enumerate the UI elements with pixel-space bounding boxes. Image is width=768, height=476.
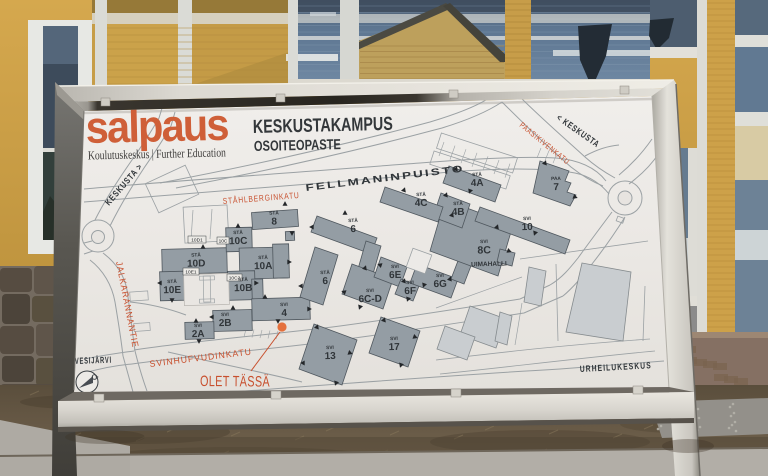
svg-text:2A: 2A [192,329,205,340]
svg-text:10C: 10C [219,238,228,244]
svg-text:P: P [96,375,99,380]
svg-text:4C: 4C [415,198,428,209]
svg-text:UIMAHALLI: UIMAHALLI [471,261,507,269]
svg-text:10E: 10E [163,285,181,296]
svg-text:10: 10 [521,222,533,233]
svg-text:10D1: 10D1 [191,237,203,243]
svg-text:6C-D: 6C-D [358,294,382,306]
svg-text:6E: 6E [389,270,402,281]
svg-text:KESKUSTAKAMPUS: KESKUSTAKAMPUS [253,114,393,138]
svg-text:4A: 4A [471,178,484,189]
svg-text:13: 13 [324,351,336,362]
svg-text:8C: 8C [477,244,491,256]
svg-text:6: 6 [350,224,356,235]
svg-text:6: 6 [322,276,328,287]
svg-text:10D: 10D [187,258,206,269]
svg-text:6F: 6F [404,286,416,297]
svg-text:OSOITEOPASTE: OSOITEOPASTE [254,137,342,155]
svg-text:8: 8 [271,216,277,227]
svg-text:7: 7 [553,182,559,193]
svg-text:4B: 4B [452,207,465,218]
svg-text:4: 4 [281,308,287,319]
svg-text:17: 17 [388,342,400,353]
svg-text:10B: 10B [234,283,253,294]
svg-text:10A: 10A [254,261,273,272]
svg-text:10C: 10C [229,236,248,247]
svg-text:VESIJÄRVI: VESIJÄRVI [75,355,112,366]
svg-text:6G: 6G [433,279,447,290]
svg-text:OLET TÄSSÄ: OLET TÄSSÄ [200,373,270,391]
svg-text:2B: 2B [219,318,232,329]
svg-text:10E1: 10E1 [185,269,197,275]
